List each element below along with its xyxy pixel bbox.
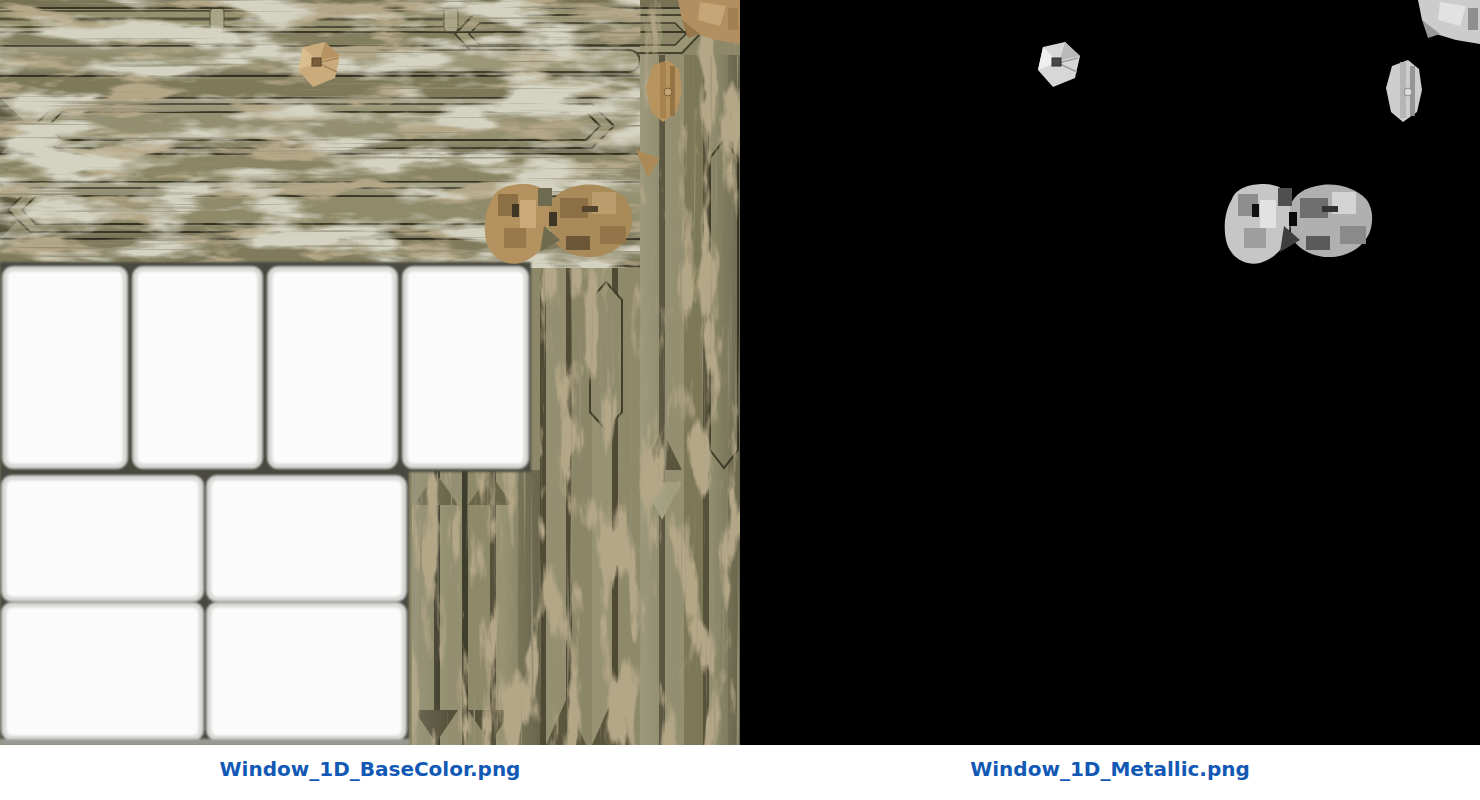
basecolor-texture-panel	[0, 0, 740, 745]
texture-image-row	[0, 0, 1480, 745]
filename-caption-bar: Window_1D_BaseColor.png Window_1D_Metall…	[0, 745, 1480, 800]
metallic-filename-label: Window_1D_Metallic.png	[740, 745, 1480, 800]
basecolor-texture-image	[0, 0, 740, 745]
metallic-texture-panel	[740, 0, 1480, 745]
texture-comparison-view: Window_1D_BaseColor.png Window_1D_Metall…	[0, 0, 1480, 800]
metallic-background	[740, 0, 1480, 745]
basecolor-filename-label: Window_1D_BaseColor.png	[0, 745, 740, 800]
metallic-texture-image	[740, 0, 1480, 745]
